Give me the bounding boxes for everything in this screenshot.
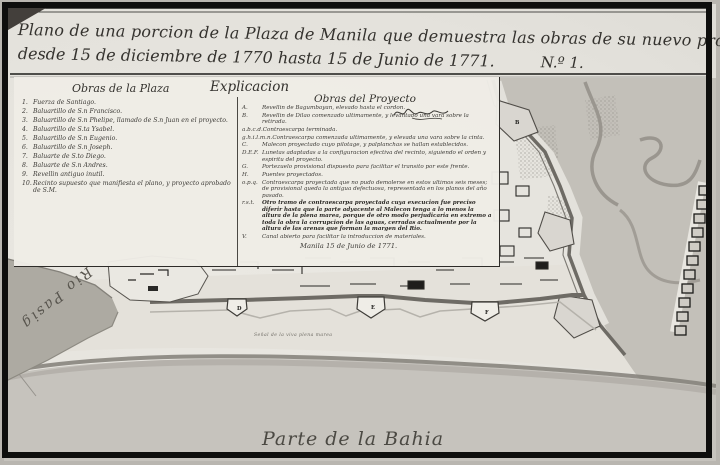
legend-column-divider (237, 97, 238, 266)
signature-flourish (392, 105, 452, 121)
legend-item: H.Puentes proyectados. (242, 172, 494, 178)
legend-item: a.b.c.d.Contraescarpa terminada. (242, 127, 494, 133)
solid-block (536, 262, 548, 269)
solid-block (408, 281, 424, 289)
legend-item: D.E.F.Lunetas adaptadas a la configuraci… (242, 150, 494, 163)
legend-item: o.p.q.Contraescarpa proyectada que no pu… (242, 180, 494, 199)
legend-item: C.Malecon proyectado cuyo pilotage, y pa… (242, 142, 494, 148)
legend-item: 6.Baluartillo de S.n Joseph. (22, 144, 234, 152)
plaza-heading: Obras de la Plaza (72, 82, 169, 95)
map-sheet: Plano de una porcion de la Plaza de Mani… (4, 4, 716, 461)
explicacion-heading: Explicacion (210, 79, 289, 95)
legend-item: B.Revellin de Dilao comenzado ultimament… (242, 113, 494, 126)
legend-item: 7.Baluarte de S.to Diego. (22, 153, 234, 161)
marker-luneta-e: E (371, 305, 375, 311)
photographed-map: Plano de una porcion de la Plaza de Mani… (0, 0, 720, 465)
proyecto-item-list: A.Revellin de Bagumbayan, elevado hasta … (242, 105, 494, 251)
proyecto-heading: Obras del Proyecto (314, 93, 416, 105)
legend-item: A.Revellin de Bagumbayan, elevado hasta … (242, 105, 494, 111)
bay-label: Parte de la Bahia (262, 428, 444, 450)
legend-item: 4.Baluartillo de S.ta Ysabel. (22, 126, 234, 134)
legend-item: g.h.i.l.m.n.Contraescarpa comenzada ulti… (242, 135, 494, 141)
tide-line-label: Señal de la viva plena marea (254, 333, 332, 338)
legend-item: 9.Revellin antiguo inutil. (22, 171, 234, 179)
legend-item: 5.Baluartillo de S.n Eugenio. (22, 135, 234, 143)
legend-item: 2.Baluartillo de S.n Francisco. (22, 108, 234, 116)
legend-item: 3.Baluartillo de S.n Phelipe, llamado de… (22, 117, 234, 125)
legend-item-emphasized: r.s.t.Otro tramo de contraescarpa proyec… (242, 200, 494, 232)
legend-item: V.Canal abierto para facilitar la introd… (242, 234, 494, 240)
marker-luneta-d: D (237, 306, 242, 312)
legend-item: 8.Baluarte de S.n Andres. (22, 162, 234, 170)
dateline: Manila 15 de Junio de 1771. (300, 243, 494, 251)
legend-item: G.Portezuelo provisional dispuesto para … (242, 164, 494, 170)
plaza-item-list: 1.Fuerza de Santiago. 2.Baluartillo de S… (22, 99, 234, 196)
legend-panel: Obras de la Plaza Explicacion Obras del … (14, 77, 500, 267)
legend-item: 10.Recinto supuesto que manifiesta el pl… (22, 180, 234, 195)
trees-stipple (585, 95, 620, 140)
legend-item: 1.Fuerza de Santiago. (22, 99, 234, 107)
marker-ravelin-b: B (515, 120, 519, 126)
marker-luneta-f: F (485, 310, 489, 316)
sheet-number: N.º 1. (541, 53, 584, 72)
